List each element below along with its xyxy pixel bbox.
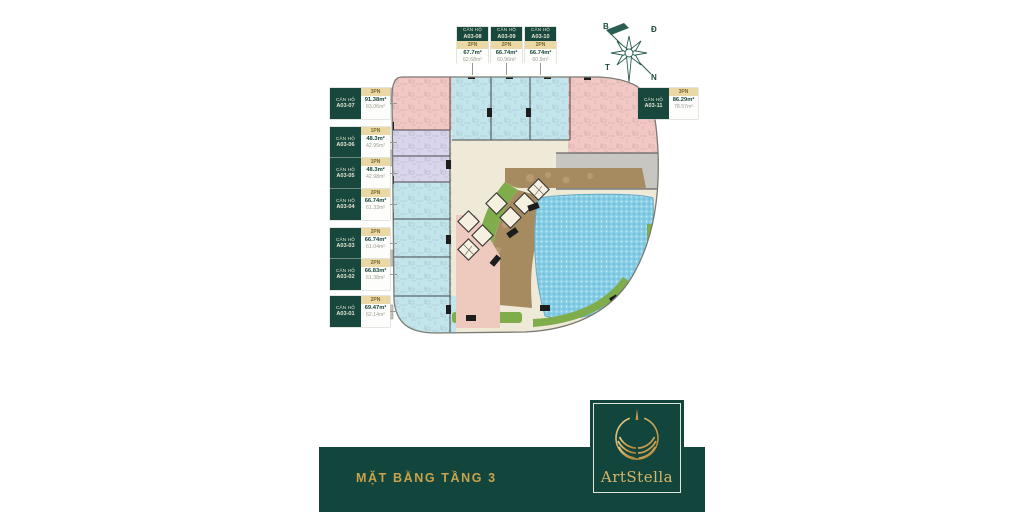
leader-line [390, 103, 397, 104]
unit-net-area: 42.95m² [361, 143, 390, 150]
unit-gross-area: 91.38m² [361, 96, 390, 104]
unit-type: 2PN [525, 41, 556, 49]
compass-north-arrow [606, 23, 629, 35]
brand-logo-box: ArtStella [590, 400, 684, 496]
compass-label-south: N [651, 73, 657, 82]
unit-net-area: 61.04m² [361, 244, 390, 251]
unit-label-a03-05: CĂN HỘ A03-05 1PN 48.3m² 42.98m² [330, 158, 390, 189]
unit-code-box: CĂN HỘ A03-01 [330, 296, 361, 327]
unit-label-a03-06: CĂN HỘ A03-06 1PN 48.3m² 42.95m² [330, 127, 390, 158]
unit-type: 2PN [361, 259, 390, 267]
leader-line [390, 311, 397, 312]
unit-label-a03-02: CĂN HỘ A03-02 2PN 66.83m² 61.38m² [330, 259, 390, 290]
unit-net-area: 62.14m² [361, 312, 390, 319]
unit-gross-area: 66.74m² [361, 197, 390, 205]
leader-line [390, 204, 397, 205]
unit-type: 3PN [669, 88, 698, 96]
leader-line [390, 142, 397, 143]
unit-label-a03-01: CĂN HỘ A03-01 2PN 69.47m² 62.14m² [330, 296, 390, 327]
floor-plan [378, 60, 678, 344]
unit-type: 2PN [361, 296, 390, 304]
unit-code-box: CĂN HỘ A03-06 [330, 127, 361, 158]
floorplan-page: B Đ T N CĂN HỘ A03-07 3PN 91.38m² 83.06m… [0, 0, 1024, 512]
unit-type: 1PN [361, 127, 390, 135]
unit-gross-area: 66.74m² [525, 49, 556, 57]
unit-type: 2PN [361, 228, 390, 236]
leader-line [390, 274, 397, 275]
unit-type: 2PN [491, 41, 522, 49]
unit-code-box: CĂN HỘ A03-10 [525, 27, 556, 41]
unit-code: A03-05 [336, 173, 354, 180]
unit-code: A03-01 [336, 311, 354, 318]
unit-prefix: CĂN HỘ [531, 27, 550, 33]
unit-code-box: CĂN HỘ A03-08 [457, 27, 488, 41]
unit-label-a03-09: CĂN HỘ A03-09 2PN 66.74m² 60.96m² [491, 27, 522, 63]
compass-rose-icon: B Đ T N [595, 12, 667, 84]
unit-code-box: CĂN HỘ A03-04 [330, 189, 361, 220]
unit-code: A03-08 [463, 34, 481, 41]
unit-net-area: 83.06m² [361, 104, 390, 111]
unit-gross-area: 66.74m² [361, 236, 390, 244]
unit-code: A03-07 [336, 103, 354, 110]
unit-net-area: 61.33m² [361, 205, 390, 212]
unit-gross-area: 86.29m² [669, 96, 698, 104]
unit-prefix: CĂN HỘ [336, 305, 355, 311]
unit-label-a03-10: CĂN HỘ A03-10 2PN 66.74m² 60.9m² [525, 27, 556, 63]
unit-label-a03-11: CĂN HỘ A03-11 3PN 86.29m² 78.57m² [638, 88, 698, 119]
leader-line [390, 243, 397, 244]
unit-gross-area: 66.74m² [491, 49, 522, 57]
unit-net-area: 78.57m² [669, 104, 698, 111]
unit-type: 3PN [361, 88, 390, 96]
unit-code: A03-03 [336, 243, 354, 250]
unit-prefix: CĂN HỘ [336, 268, 355, 274]
unit-gross-area: 66.83m² [361, 267, 390, 275]
unit-code-box: CĂN HỘ A03-02 [330, 259, 361, 290]
unit-label-a03-07: CĂN HỘ A03-07 3PN 91.38m² 83.06m² [330, 88, 390, 119]
leader-line [472, 63, 473, 75]
unit-prefix: CĂN HỘ [336, 136, 355, 142]
unit-label-a03-04: CĂN HỘ A03-04 2PN 66.74m² 61.33m² [330, 189, 390, 220]
compass-label-east: Đ [651, 25, 657, 34]
unit-code-box: CĂN HỘ A03-11 [638, 88, 669, 119]
unit-prefix: CĂN HỘ [644, 97, 663, 103]
unit-code: A03-10 [531, 34, 549, 41]
unit-code: A03-06 [336, 142, 354, 149]
pool [535, 194, 654, 318]
unit-prefix: CĂN HỘ [336, 167, 355, 173]
unit-prefix: CĂN HỘ [336, 198, 355, 204]
unit-net-area: 42.98m² [361, 174, 390, 181]
unit-code: A03-11 [644, 103, 662, 110]
unit-prefix: CĂN HỘ [497, 27, 516, 33]
unit-code-box: CĂN HỘ A03-05 [330, 158, 361, 189]
brand-name: ArtStella [590, 468, 684, 486]
unit-code-box: CĂN HỘ A03-03 [330, 228, 361, 259]
artstella-tower-icon [607, 407, 667, 465]
unit-gross-area: 69.47m² [361, 304, 390, 312]
unit-type: 2PN [361, 189, 390, 197]
unit-type: 1PN [361, 158, 390, 166]
unit-gross-area: 48.3m² [361, 166, 390, 174]
compass-label-north: B [603, 22, 609, 31]
page-title: MẶT BẰNG TẦNG 3 [356, 471, 497, 485]
unit-gross-area: 48.3m² [361, 135, 390, 143]
compass-label-west: T [605, 63, 610, 72]
unit-code-box: CĂN HỘ A03-09 [491, 27, 522, 41]
leader-line [540, 63, 541, 75]
unit-type: 2PN [457, 41, 488, 49]
leader-line [390, 173, 397, 174]
unit-label-a03-08: CĂN HỘ A03-08 2PN 67.7m² 62.68m² [457, 27, 488, 63]
unit-code: A03-02 [336, 274, 354, 281]
unit-prefix: CĂN HỘ [463, 27, 482, 33]
unit-prefix: CĂN HỘ [336, 97, 355, 103]
unit-net-area: 61.38m² [361, 275, 390, 282]
unit-code: A03-04 [336, 204, 354, 211]
leader-line [506, 63, 507, 75]
unit-gross-area: 67.7m² [457, 49, 488, 57]
unit-code-box: CĂN HỘ A03-07 [330, 88, 361, 119]
unit-prefix: CĂN HỘ [336, 237, 355, 243]
unit-code: A03-09 [497, 34, 515, 41]
unit-label-a03-03: CĂN HỘ A03-03 2PN 66.74m² 61.04m² [330, 228, 390, 259]
